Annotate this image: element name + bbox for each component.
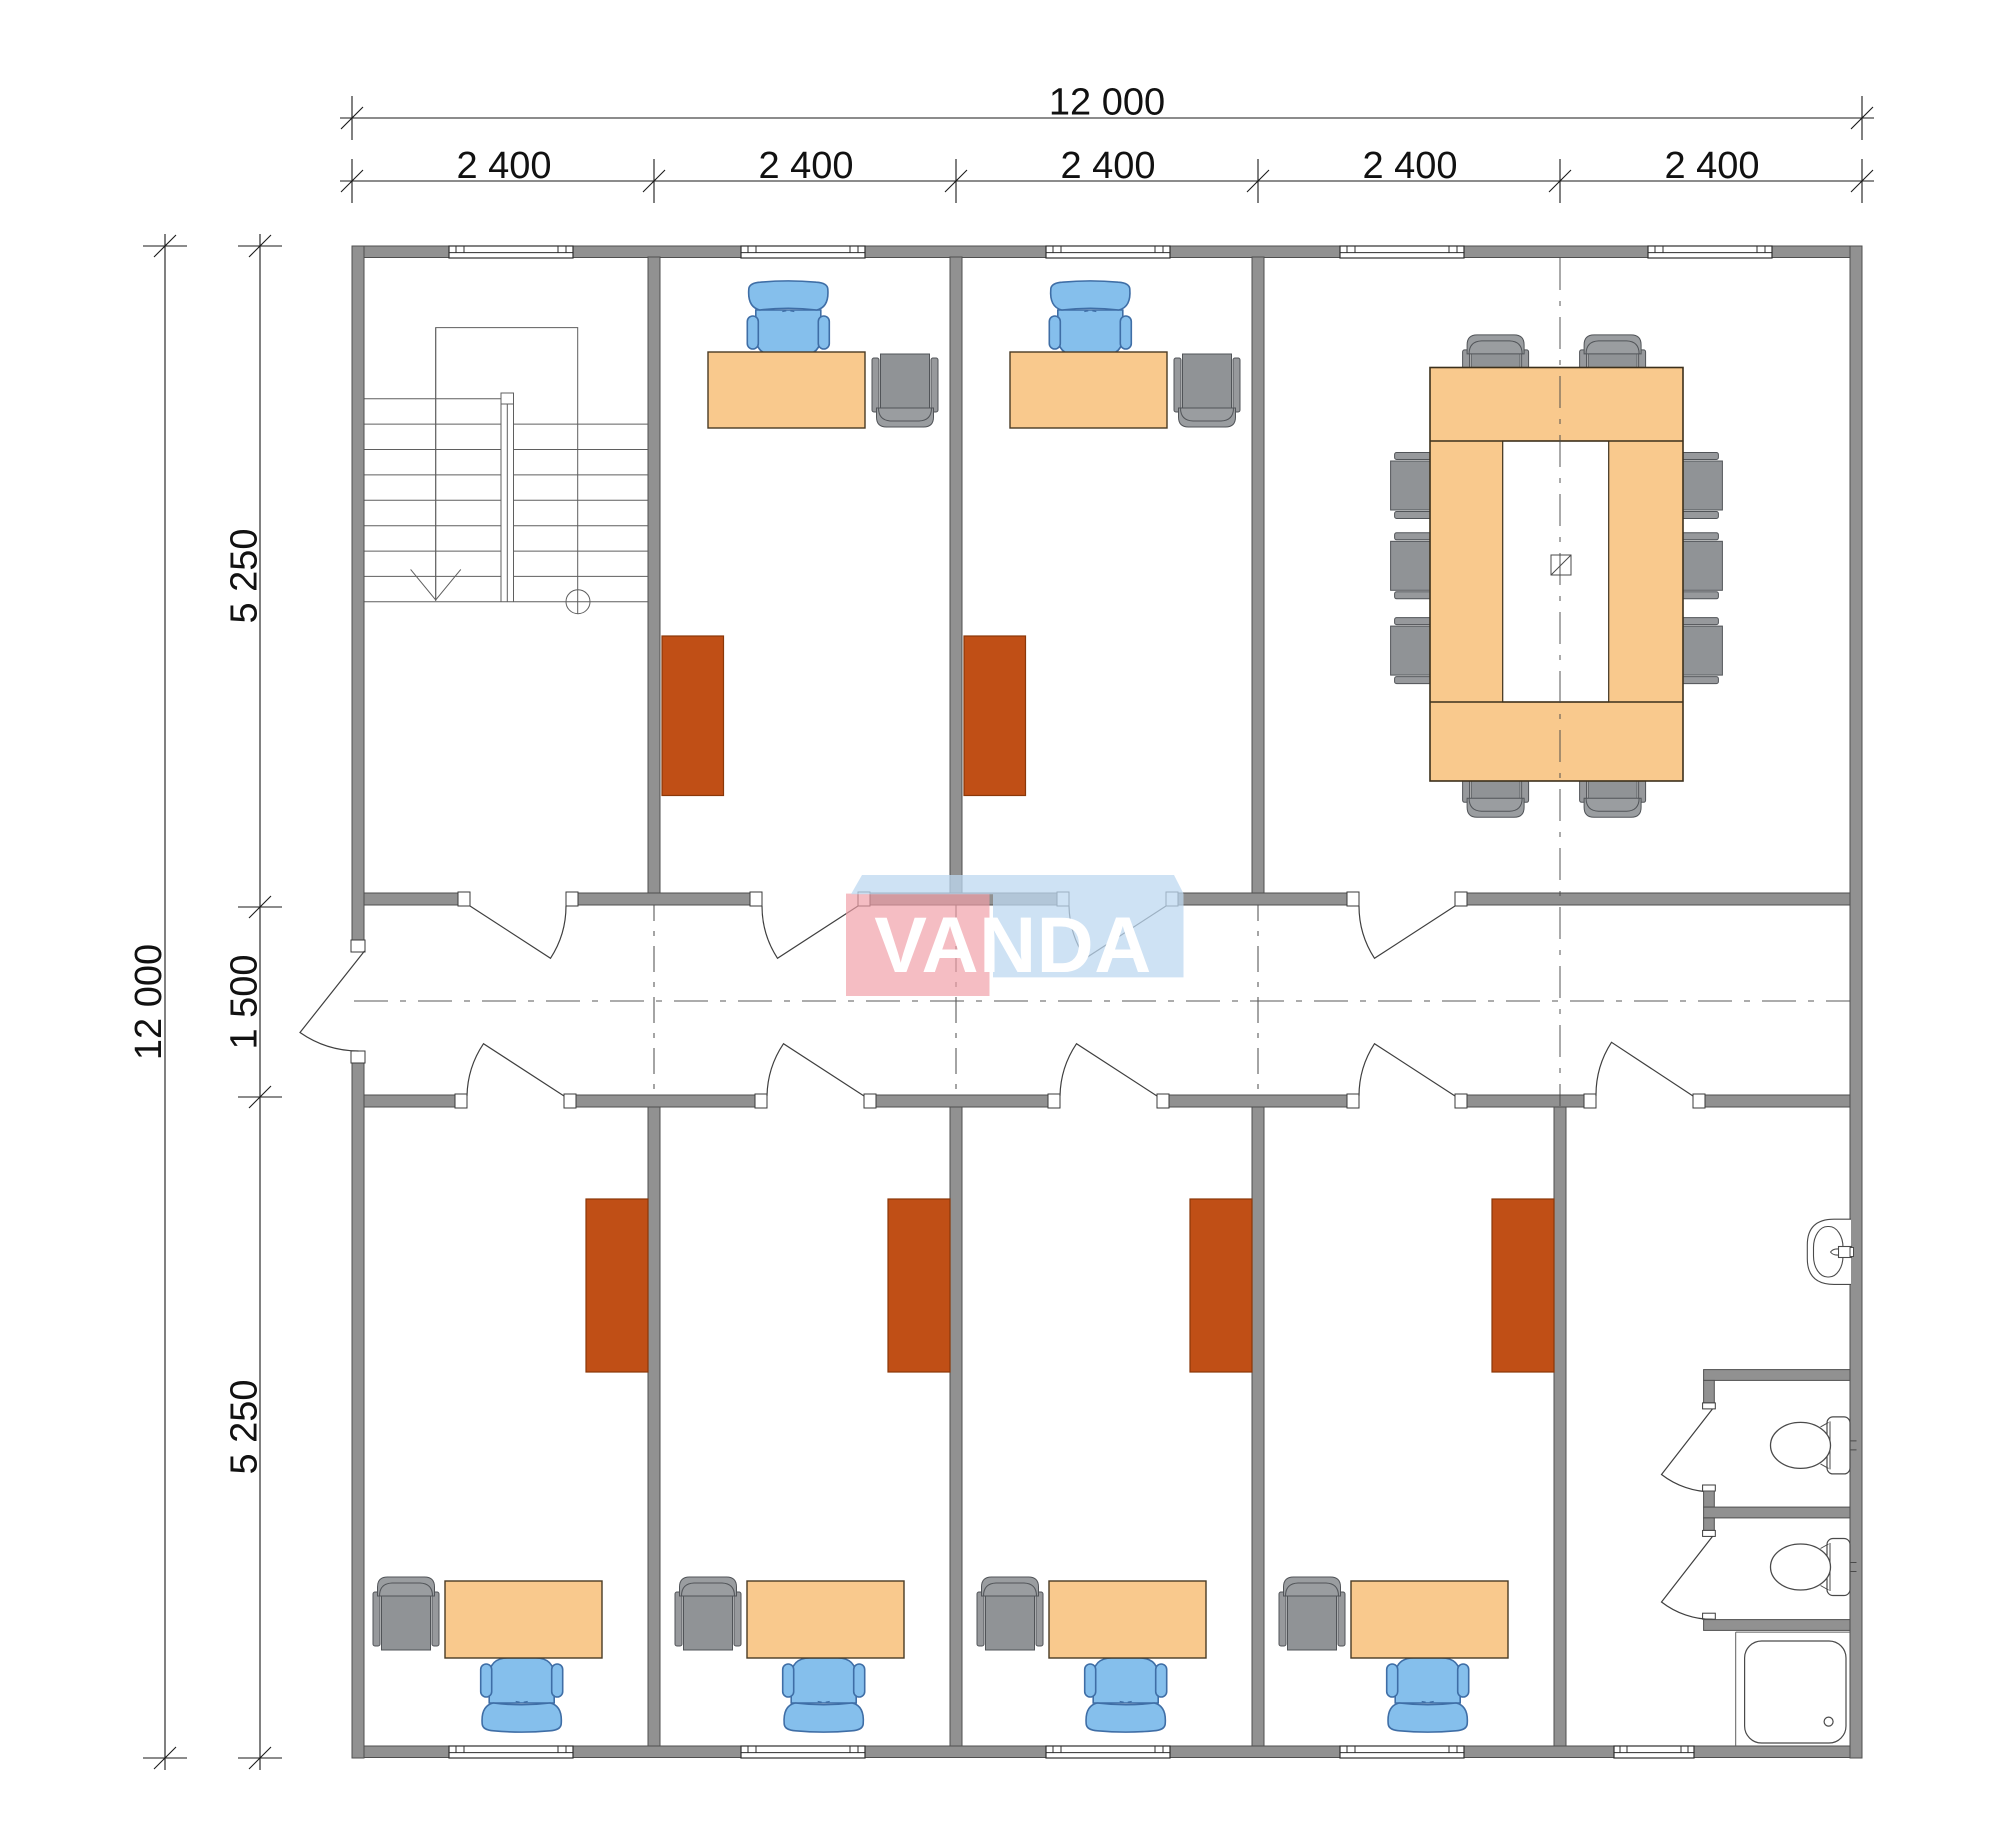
svg-text:2 400: 2 400: [758, 145, 853, 187]
svg-text:5 250: 5 250: [224, 1379, 266, 1474]
svg-text:12 000: 12 000: [1049, 82, 1165, 124]
svg-text:2 400: 2 400: [1060, 145, 1155, 187]
svg-text:2 400: 2 400: [1664, 145, 1759, 187]
svg-text:5 250: 5 250: [224, 528, 266, 623]
svg-text:12 000: 12 000: [128, 944, 170, 1060]
svg-text:1 500: 1 500: [224, 954, 266, 1049]
svg-text:VANDA: VANDA: [874, 900, 1152, 989]
svg-text:2 400: 2 400: [456, 145, 551, 187]
svg-text:2 400: 2 400: [1362, 145, 1457, 187]
